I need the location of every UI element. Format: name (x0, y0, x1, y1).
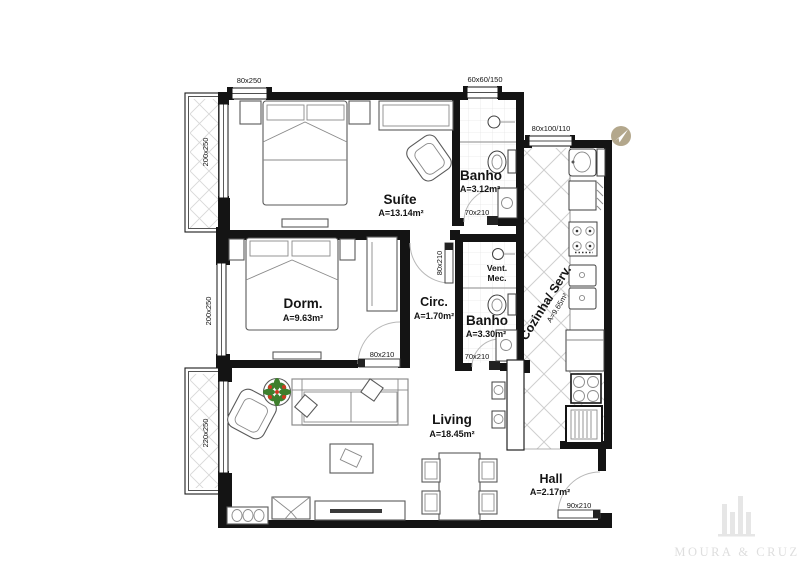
dim-living-balcony-door: 220x250 (201, 419, 210, 448)
room-area-banho-social: A=3.30m² (466, 329, 506, 339)
corner-cabinet (272, 497, 310, 519)
room-label-suite: Suíte (383, 192, 416, 207)
watermark-logo (718, 496, 755, 537)
vanity (498, 188, 517, 218)
counter-basin-1 (569, 265, 596, 286)
kitchen-window (525, 135, 575, 147)
dim-suite-balcony-door: 200x250 (201, 138, 210, 167)
dim-suite-door: 80x210 (435, 251, 444, 276)
floor-plan-svg: Suíte A=13.14m² Dorm. A=9.63m² Circ. A=1… (0, 0, 800, 577)
room-label-banho-social: Banho (466, 313, 508, 328)
room-label-hall: Hall (540, 472, 563, 486)
coffee-table (330, 444, 373, 473)
tv (330, 509, 382, 513)
vent-mec-label-2: Mec. (488, 273, 507, 283)
room-label-banho-suite: Banho (460, 168, 502, 183)
room-area-suite: A=13.14m² (378, 208, 423, 218)
dining-chair (479, 491, 497, 514)
floor-plan-canvas: Suíte A=13.14m² Dorm. A=9.63m² Circ. A=1… (0, 0, 800, 577)
room-area-circ: A=1.70m² (414, 311, 454, 321)
suite-window (227, 87, 272, 100)
dorm-window (217, 263, 226, 356)
shoe-rack (227, 507, 268, 524)
dim-suite-window: 80x250 (237, 76, 262, 85)
suite-double-bed (263, 101, 347, 205)
living-furniture (224, 378, 408, 524)
stove-icon (569, 222, 597, 256)
room-area-hall: A=2.17m² (530, 487, 570, 497)
toilet-tank (508, 150, 516, 173)
room-label-dorm: Dorm. (283, 296, 322, 311)
watermark-name: MOURA & CRUZ (674, 545, 799, 559)
bar-counter (492, 360, 524, 450)
watermark: MOURA & CRUZ (674, 496, 799, 559)
vent-mec-label-1: Vent. (487, 263, 507, 273)
dim-bath-social-door: 70x210 (465, 352, 490, 361)
kitchen-appliances (566, 149, 605, 443)
dim-kitchen-window: 80x100/110 (532, 124, 571, 133)
room-label-circ: Circ. (420, 295, 448, 309)
dorm-bench (273, 352, 321, 359)
toilet-tank (508, 294, 516, 315)
counter-basin-2 (569, 288, 596, 309)
dorm-door (358, 322, 400, 367)
living-balcony-sliding-door (218, 377, 229, 476)
dim-entry-door: 90x210 (567, 501, 592, 510)
dorm-nightstand-right (340, 239, 355, 260)
suite-nightstand-left (240, 101, 261, 124)
suite-nightstand-right (349, 101, 370, 124)
suite-armchair (404, 132, 455, 184)
dim-dorm-door: 80x210 (370, 350, 395, 359)
bath-suite-window (463, 86, 502, 99)
suite-bench (282, 219, 328, 227)
dining-chair (479, 459, 497, 482)
plant-icon (263, 378, 291, 406)
dim-bath-suite-door: 70x210 (465, 208, 490, 217)
room-area-living: A=18.45m² (429, 429, 474, 439)
room-area-banho-suite: A=3.12m² (460, 184, 500, 194)
dining-chair (422, 491, 440, 514)
fridge (566, 330, 604, 371)
suite-door (410, 243, 453, 283)
dining-chair (422, 459, 440, 482)
toilet-icon (488, 295, 506, 315)
dining-table (439, 453, 480, 520)
dorm-nightstand-left (229, 239, 244, 260)
room-label-living: Living (432, 412, 472, 427)
dorm-wardrobe (367, 237, 397, 311)
kitchen-counter (569, 181, 596, 210)
shower-icon (488, 116, 500, 128)
north-arrow-icon (611, 126, 631, 146)
room-area-dorm: A=9.63m² (283, 313, 323, 323)
dim-bath-suite-window: 60x60/150 (467, 75, 502, 84)
dining-set (422, 453, 497, 520)
shower-icon (493, 249, 504, 260)
kitchen-cabinet-tall (597, 149, 605, 176)
suite-balcony-sliding-door (218, 100, 229, 201)
dim-dorm-window: 200x250 (204, 297, 213, 326)
